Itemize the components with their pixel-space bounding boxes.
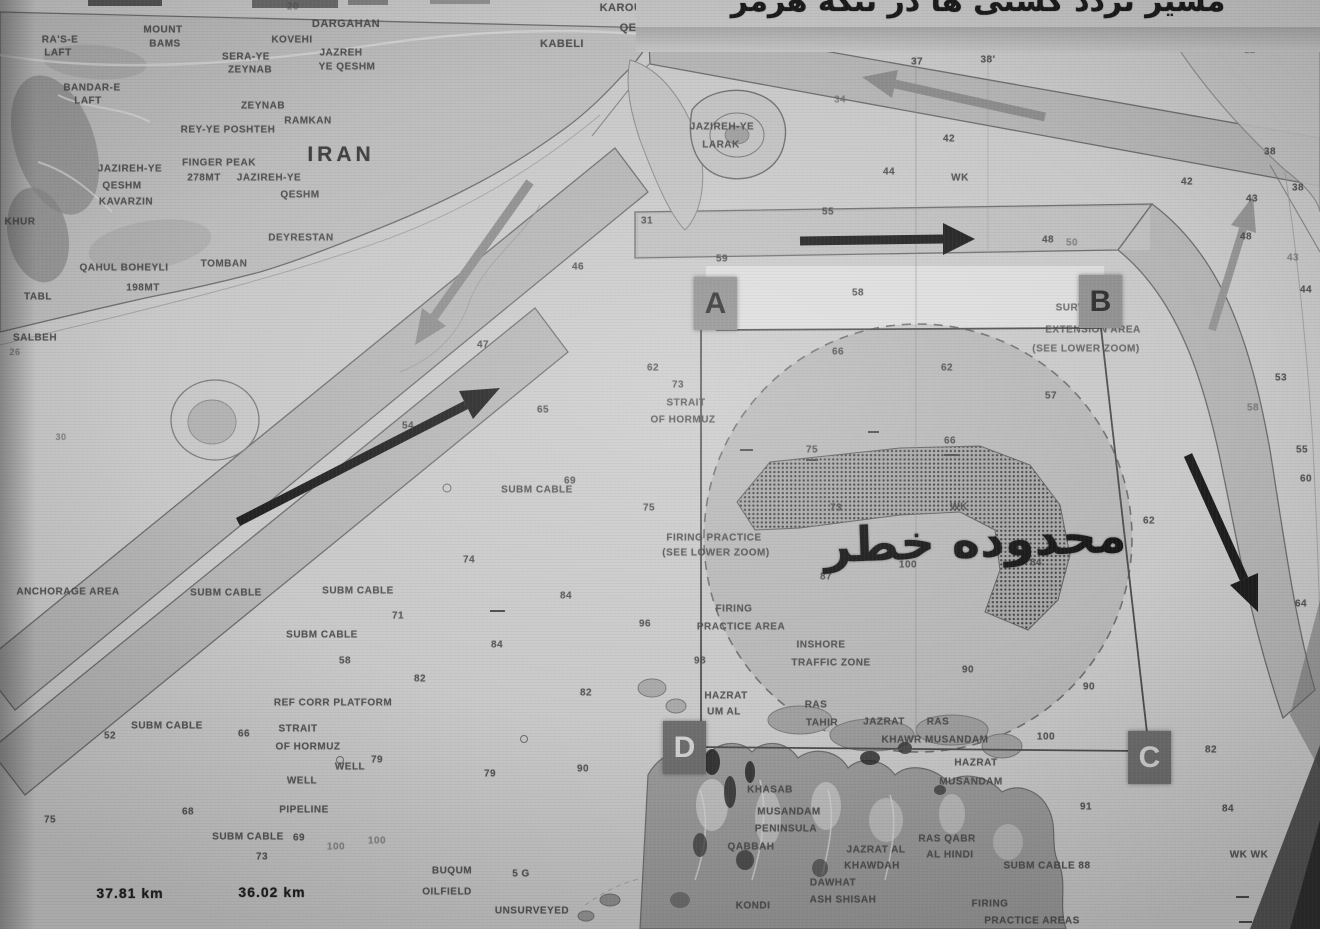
map-label: STRAIT [666,398,705,409]
map-label: 36.02 km [238,884,305,900]
map-label: LARAK [702,140,740,151]
map-label: DEYRESTAN [268,233,333,244]
map-label: KHAWDAH [844,861,900,872]
map-label: 31 [641,216,653,227]
map-label: MUSANDAM [939,777,1002,788]
map-label: 37 [911,57,923,68]
corner-marker-b: B [1079,275,1122,328]
map-label: PRACTICE AREA [697,622,785,633]
map-label: 64 [1295,599,1307,610]
map-label: 91 [1080,802,1092,813]
map-label: QABBAH [728,842,775,853]
corner-marker-c: C [1128,731,1171,784]
map-label: OILFIELD [422,887,472,898]
map-label: 79 [371,755,383,766]
caption-bar-shadow [636,27,1320,52]
map-label: 20 [287,2,299,13]
map-label: UM AL [707,707,741,718]
map-label: KHUR [5,217,36,228]
map-label: 100 [368,836,386,847]
map-label: KHASAB [747,785,793,796]
map-label: 68 [182,807,194,818]
map-label: JAZIREH-YE [690,122,754,133]
map-label: JAZREH [319,48,362,59]
map-label: 62 [941,363,953,374]
map-label: 55 [822,207,834,218]
map-label: RAMKAN [284,116,331,127]
map-label: 50 [1066,238,1078,249]
map-label: ASH SHISAH [810,895,877,906]
map-label: YE QESHM [319,62,376,73]
map-label: FIRING PRACTICE [666,533,761,544]
map-label: MUSANDAM [757,807,820,818]
map-label: WK WK [1230,850,1269,861]
map-label: SERA-YE [222,52,270,63]
map-label: 84 [491,640,503,651]
map-label: ZEYNAB [241,101,285,112]
map-label: WELL [287,776,317,787]
map-label: 96 [639,619,651,630]
traffic-arrow-north-icon [1212,196,1256,330]
map-label: 30 [55,432,66,442]
map-label: TAHIR [806,718,838,729]
map-label: 54 [402,421,414,432]
map-label: 100 [327,842,345,853]
map-label: BANDAR-E [63,83,120,94]
map-label: 84 [560,591,572,602]
map-label: RAS QABR [918,834,975,845]
map-label: QAHUL BOHEYLI [79,263,168,274]
map-label: 278MT [187,173,221,184]
corner-marker-a: A [694,277,737,330]
islet [638,679,666,697]
map-label: 66 [944,436,956,447]
map-label: 75 [44,815,56,826]
map-label: 69 [293,833,305,844]
map-label: JAZRAT [863,717,905,728]
map-label: HAZRAT [954,758,997,769]
map-label: 53 [1275,373,1287,384]
map-label: 58 [339,656,351,667]
map-label: BAMS [149,39,180,50]
map-label: BUQUM [432,866,472,877]
map-label: QESHM [102,181,141,192]
map-label: 37.81 km [96,885,163,901]
map-label: 82 [1205,745,1217,756]
hengam-island [171,380,259,460]
map-label: SUBM CABLE [322,586,394,597]
map-label: AL HINDI [926,850,973,861]
map-label: 43 [1246,194,1258,205]
caption-text: مسیر تردد کشتی ها در تنگه هرمز [636,0,1320,19]
map-label: SUBM CABLE 88 [1003,861,1090,872]
map-label: ANCHORAGE AREA [16,587,119,598]
map-label: 44 [1300,285,1312,296]
map-label: 26 [9,347,20,357]
map-label: TOMBAN [201,259,248,270]
map-label: 100 [1037,732,1055,743]
map-label: 58 [852,288,864,299]
map-label: 82 [580,688,592,699]
map-label: RAS [805,700,828,711]
map-label: 66 [832,347,844,358]
map-label: QESHM [280,190,319,201]
map-label: ZEYNAB [228,65,272,76]
map-label: RAS [927,717,950,728]
map-label: 46 [572,262,584,273]
map-label: (SEE LOWER ZOOM) [662,548,769,559]
corner-marker-d: D [663,721,706,774]
map-label: 73 [672,380,684,391]
map-label: 84 [1222,804,1234,815]
map-label: TABL [24,292,52,303]
map-label: 65 [537,405,549,416]
map-label: OF HORMUZ [275,742,340,753]
map-label: JAZRAT AL [847,845,906,856]
map-label: LAFT [44,48,72,59]
map-label: 75 [806,445,818,456]
map-label: LAFT [74,96,102,107]
map-label: KABELI [540,38,584,50]
map-label: 58 [1247,403,1259,414]
islet [666,699,686,713]
map-label: 79 [484,769,496,780]
separation-light-zone [706,266,1104,330]
map-label: TRAFFIC ZONE [791,658,870,669]
map-label: 90 [577,764,589,775]
map-label: 38 [1264,147,1276,158]
danger-zone-label: محدوده خطر [823,508,1128,575]
map-label: SUBM CABLE [212,832,284,843]
map-label: 44 [883,167,895,178]
map-label: PENINSULA [755,824,817,835]
map-label: 82 [414,674,426,685]
map-label: 52 [104,731,116,742]
caption-bar: مسیر تردد کشتی ها در تنگه هرمز [636,0,1320,27]
map-label: INSHORE [796,640,845,651]
map-label: 60 [1300,474,1312,485]
map-label: 48 [1240,232,1252,243]
coast-blob-northeast [628,60,703,230]
map-label: WK [951,173,969,184]
map-label: KHAWR MUSANDAM [882,735,989,746]
map-label: 90 [962,665,974,676]
map-label: FINGER PEAK [182,158,256,169]
map-label: 71 [392,611,404,622]
nautical-chart-scan: 20KAROUQESHMKABELIDARGAHANKOVEHIJAZREHYE… [0,0,1320,929]
well-symbol [521,736,528,743]
map-label: 62 [647,363,659,374]
map-label: SUBM CABLE [131,721,203,732]
map-label: 73 [830,503,842,514]
map-label: IRAN [307,143,374,167]
well-symbol [443,484,451,492]
map-label: 59 [716,254,728,265]
map-label: OF HORMUZ [650,415,715,426]
map-label: SALBEH [13,333,57,344]
map-label: FIRING [972,899,1009,910]
map-label: PRACTICE AREAS [984,916,1080,927]
map-label: 38 [1292,183,1304,194]
map-label: STRAIT [278,724,317,735]
map-label: 98 [694,656,706,667]
map-label: FIRING [716,604,753,615]
map-label: 57 [1045,391,1057,402]
map-label: 66 [238,729,250,740]
map-label: WK [950,502,968,513]
map-label: 34 [834,95,846,106]
map-label: 42 [1181,177,1193,188]
map-label: MOUNT [143,25,182,36]
map-label: 5 G [512,869,530,880]
map-label: UNSURVEYED [495,906,569,917]
map-label: REY-YE POSHTEH [181,125,276,136]
map-label: DAWHAT [810,878,856,889]
larak-island [690,90,785,178]
map-label: 90 [1083,682,1095,693]
map-label: RA'S-E [42,35,79,46]
map-label: SUBM CABLE [286,630,358,641]
map-label: 74 [463,555,475,566]
map-label: 42 [943,134,955,145]
map-label: 43 [1287,253,1299,264]
map-label: SUBM CABLE [501,485,573,496]
map-label: WELL [335,762,365,773]
map-label: KAVARZIN [99,197,153,208]
map-label: KOVEHI [271,35,312,46]
map-label: REF CORR PLATFORM [274,698,392,709]
map-label: 198MT [126,283,160,294]
map-label: SUBM CABLE [190,588,262,599]
map-label: 38' [980,55,995,66]
map-label: 62 [1143,516,1155,527]
map-label: 48 [1042,235,1054,246]
map-label: (SEE LOWER ZOOM) [1032,344,1139,355]
map-label: PIPELINE [279,805,329,816]
map-label: JAZIREH-YE [237,173,301,184]
map-label: 73 [256,852,268,863]
map-label: KONDI [736,901,771,912]
map-label: 47 [477,340,489,351]
map-label: HAZRAT [704,691,747,702]
map-label: JAZIREH-YE [98,164,162,175]
map-label: 75 [643,503,655,514]
map-label: 55 [1296,445,1308,456]
map-label: DARGAHAN [312,18,380,30]
chart-map-graphic [0,0,1320,929]
